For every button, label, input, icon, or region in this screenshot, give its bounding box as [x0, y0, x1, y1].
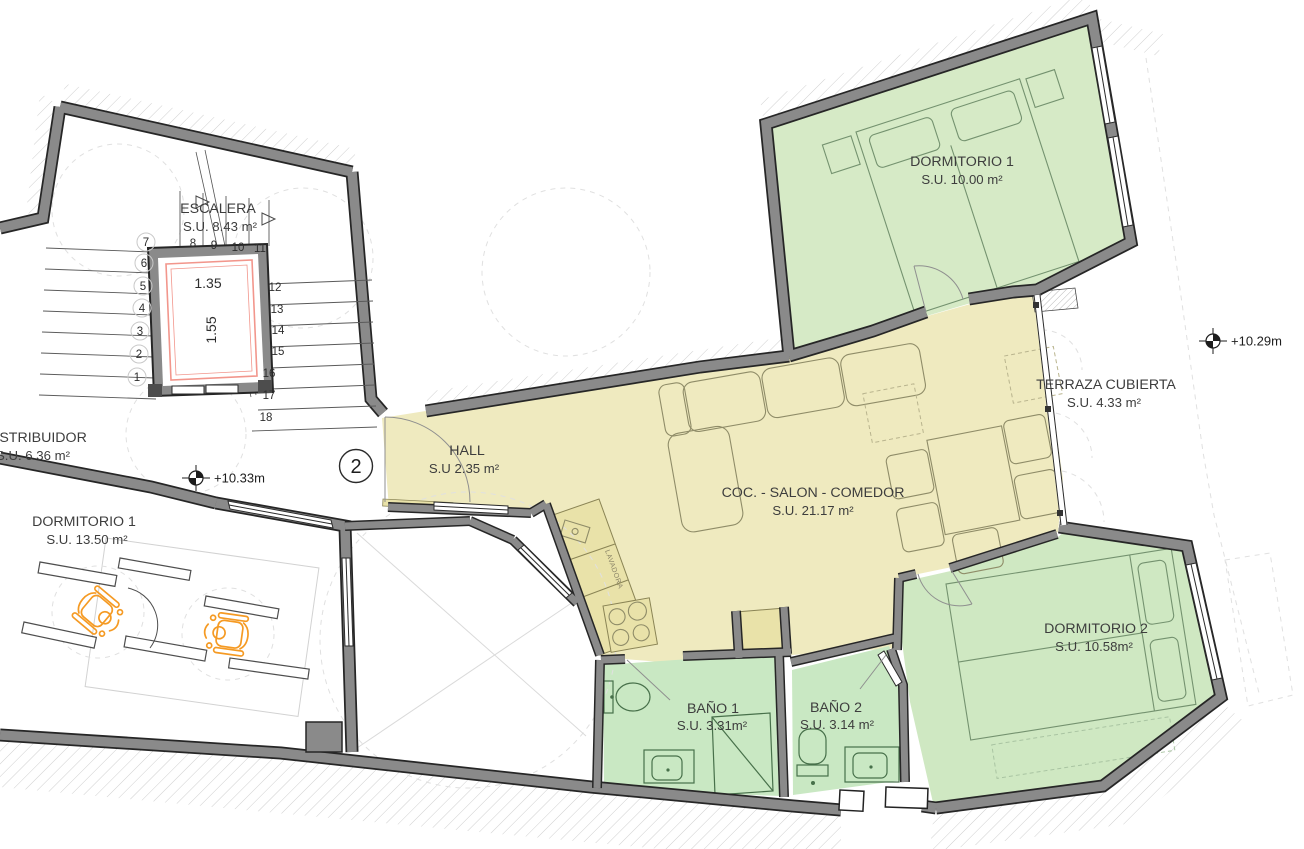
step-number: 11	[254, 243, 266, 255]
distribuidor-area: S.U. 6.36 m²	[0, 448, 71, 463]
step-number: 18	[260, 412, 273, 424]
escalera-label: ESCALERA	[180, 201, 256, 217]
unit-number-badge: 2	[340, 450, 373, 483]
step-number: 13	[271, 304, 284, 316]
floor-plan: ESCALERA S.U. 8.43 m² DISTRIBUIDOR S.U. …	[0, 0, 1304, 849]
dormitorio1-izq-label: DORMITORIO 1	[32, 514, 136, 530]
step-number: 2	[136, 349, 142, 361]
dormitorio2-area: S.U. 10.58m²	[1055, 639, 1133, 654]
wheelchair-icon	[202, 611, 251, 657]
step-number: 12	[269, 282, 282, 294]
step-number: 8	[190, 238, 196, 250]
level-value: +10.29m	[1231, 334, 1282, 349]
dormitorio1-izq-area: S.U. 13.50 m²	[46, 532, 128, 547]
distribuidor-label: DISTRIBUIDOR	[0, 430, 87, 446]
step-number: 9	[211, 240, 217, 252]
terraza-area: S.U. 4.33 m²	[1067, 395, 1142, 410]
level-marker-distribuidor: +10.33m	[182, 465, 265, 491]
hall-area: S.U 2.35 m²	[429, 461, 500, 476]
step-number: 10	[232, 242, 245, 254]
escalera-area: S.U. 8.43 m²	[183, 219, 258, 234]
step-number: 5	[140, 281, 146, 293]
step-number: 3	[137, 326, 143, 338]
level-value: +10.33m	[214, 471, 265, 486]
step-number: 1	[134, 372, 140, 384]
step-number: 4	[139, 303, 146, 315]
terraza-label: TERRAZA CUBIERTA	[1036, 377, 1176, 393]
bano1-label: BAÑO 1	[687, 700, 739, 717]
exterior-detail-boxes	[839, 787, 928, 811]
cooktop	[603, 598, 657, 652]
step-number: 6	[141, 258, 147, 270]
elevator-width-dim: 1.35	[194, 275, 221, 291]
dormitorio2-label: DORMITORIO 2	[1044, 621, 1148, 637]
dormitorio1-label: DORMITORIO 1	[910, 154, 1014, 170]
step-number: 7	[143, 237, 149, 249]
salon-area: S.U. 21.17 m²	[772, 503, 854, 518]
bano2-label: BAÑO 2	[810, 699, 862, 716]
bano1-area: S.U. 3.31m²	[677, 718, 748, 733]
step-number: 16	[263, 368, 276, 380]
step-number: 15	[272, 346, 285, 358]
step-number: 14	[272, 325, 285, 337]
rooms	[382, 18, 1219, 807]
step-number: 17	[263, 390, 276, 402]
stair-direction-arrow-icon	[262, 213, 275, 225]
furniture-dormitorio1-izq	[22, 538, 319, 716]
level-marker-terraza: +10.29m	[1199, 328, 1282, 354]
floor-plan-drawing: ESCALERA S.U. 8.43 m² DISTRIBUIDOR S.U. …	[0, 0, 1304, 849]
unit-number: 2	[350, 456, 361, 478]
hall-label: HALL	[449, 443, 485, 459]
dormitorio1-area: S.U. 10.00 m²	[921, 172, 1003, 187]
bano2-area: S.U. 3.14 m²	[800, 717, 875, 732]
elevator-depth-dim: 1.55	[203, 316, 219, 343]
salon-label: COC. - SALON - COMEDOR	[722, 485, 905, 501]
